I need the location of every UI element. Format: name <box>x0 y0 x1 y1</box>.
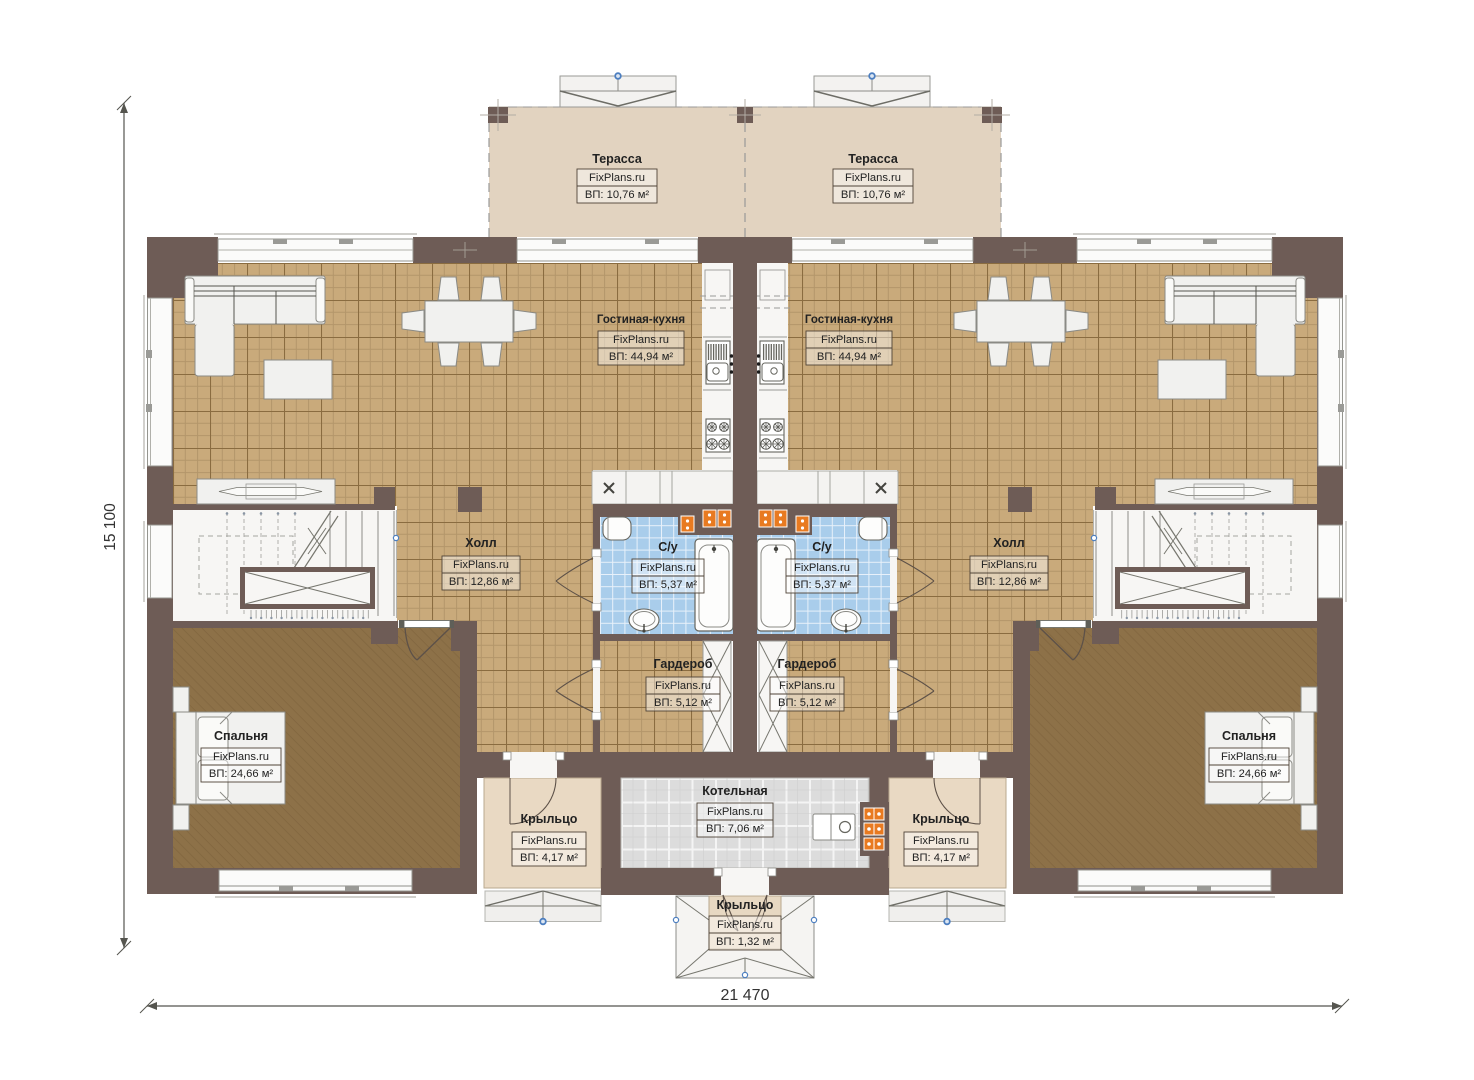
svg-text:FixPlans.ru: FixPlans.ru <box>845 172 901 184</box>
svg-text:ВП: 24,66 м²: ВП: 24,66 м² <box>209 768 274 780</box>
svg-text:ВП: 7,06 м²: ВП: 7,06 м² <box>706 823 764 835</box>
svg-text:FixPlans.ru: FixPlans.ru <box>213 751 269 763</box>
svg-text:Гардероб: Гардероб <box>777 657 836 671</box>
svg-text:Крыльцо: Крыльцо <box>521 812 578 826</box>
svg-text:Холл: Холл <box>465 536 496 550</box>
svg-text:Холл: Холл <box>993 536 1024 550</box>
svg-text:Гостиная-кухня: Гостиная-кухня <box>805 314 893 326</box>
svg-text:FixPlans.ru: FixPlans.ru <box>655 680 711 692</box>
svg-text:ВП: 12,86 м²: ВП: 12,86 м² <box>449 576 514 588</box>
svg-text:С/у: С/у <box>812 540 832 554</box>
svg-text:ВП: 10,76 м²: ВП: 10,76 м² <box>585 189 650 201</box>
svg-text:Крыльцо: Крыльцо <box>913 812 970 826</box>
svg-text:ВП: 10,76 м²: ВП: 10,76 м² <box>841 189 906 201</box>
svg-text:FixPlans.ru: FixPlans.ru <box>981 559 1037 571</box>
svg-text:Гостиная-кухня: Гостиная-кухня <box>597 314 685 326</box>
svg-text:Спальня: Спальня <box>214 729 268 743</box>
svg-text:ВП: 24,66 м²: ВП: 24,66 м² <box>1217 768 1282 780</box>
svg-text:ВП: 44,94 м²: ВП: 44,94 м² <box>609 351 674 363</box>
svg-text:FixPlans.ru: FixPlans.ru <box>1221 751 1277 763</box>
svg-text:ВП: 4,17 м²: ВП: 4,17 м² <box>912 852 970 864</box>
svg-text:Терасса: Терасса <box>592 152 643 166</box>
svg-text:С/у: С/у <box>658 540 678 554</box>
svg-text:FixPlans.ru: FixPlans.ru <box>521 835 577 847</box>
svg-text:ВП: 44,94 м²: ВП: 44,94 м² <box>817 351 882 363</box>
svg-text:FixPlans.ru: FixPlans.ru <box>717 919 773 931</box>
svg-text:FixPlans.ru: FixPlans.ru <box>913 835 969 847</box>
svg-text:FixPlans.ru: FixPlans.ru <box>613 334 669 346</box>
svg-text:Спальня: Спальня <box>1222 729 1276 743</box>
svg-text:FixPlans.ru: FixPlans.ru <box>640 562 696 574</box>
svg-text:ВП: 5,12 м²: ВП: 5,12 м² <box>654 697 712 709</box>
svg-text:21 470: 21 470 <box>721 987 770 1004</box>
svg-text:ВП: 12,86 м²: ВП: 12,86 м² <box>977 576 1042 588</box>
svg-text:Крыльцо: Крыльцо <box>717 898 774 912</box>
svg-text:FixPlans.ru: FixPlans.ru <box>821 334 877 346</box>
svg-text:ВП: 5,12 м²: ВП: 5,12 м² <box>778 697 836 709</box>
svg-text:Котельная: Котельная <box>702 784 767 798</box>
svg-text:FixPlans.ru: FixPlans.ru <box>707 806 763 818</box>
svg-text:FixPlans.ru: FixPlans.ru <box>779 680 835 692</box>
svg-text:FixPlans.ru: FixPlans.ru <box>453 559 509 571</box>
svg-text:ВП: 5,37 м²: ВП: 5,37 м² <box>639 579 697 591</box>
svg-text:15 100: 15 100 <box>102 503 119 551</box>
svg-text:FixPlans.ru: FixPlans.ru <box>794 562 850 574</box>
svg-text:ВП: 1,32 м²: ВП: 1,32 м² <box>716 936 774 948</box>
svg-text:FixPlans.ru: FixPlans.ru <box>589 172 645 184</box>
svg-text:Терасса: Терасса <box>848 152 899 166</box>
svg-text:ВП: 4,17 м²: ВП: 4,17 м² <box>520 852 578 864</box>
svg-text:ВП: 5,37 м²: ВП: 5,37 м² <box>793 579 851 591</box>
svg-text:Гардероб: Гардероб <box>653 657 712 671</box>
